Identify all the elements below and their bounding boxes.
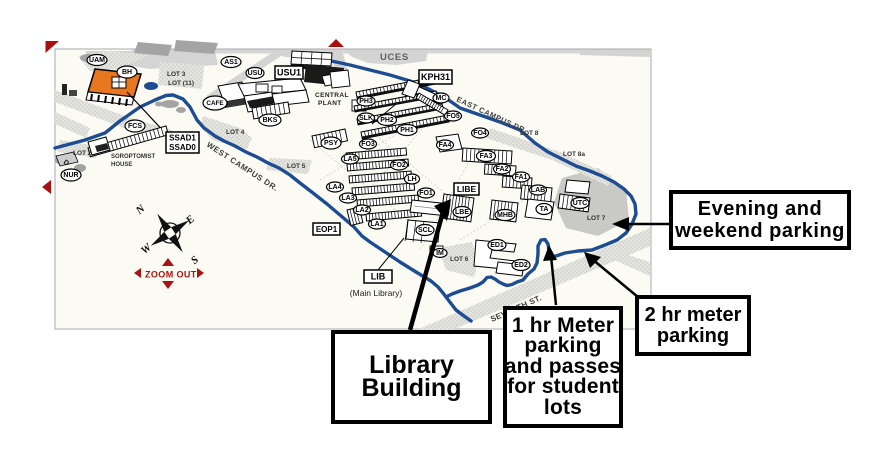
svg-text:FA2: FA2 <box>496 166 509 173</box>
svg-text:EOP1: EOP1 <box>316 225 338 234</box>
svg-text:LH: LH <box>407 176 416 183</box>
svg-text:LA1: LA1 <box>370 221 383 228</box>
svg-text:FCS: FCS <box>128 123 142 130</box>
svg-text:TA: TA <box>540 206 549 213</box>
svg-text:USU: USU <box>248 70 263 77</box>
svg-text:LOT 4: LOT 4 <box>226 129 245 136</box>
svg-text:PSY: PSY <box>324 140 338 147</box>
svg-text:ZOOM OUT: ZOOM OUT <box>145 270 197 280</box>
svg-text:LIBE: LIBE <box>457 184 477 194</box>
svg-text:UAM: UAM <box>89 57 105 64</box>
svg-text:SSAD1: SSAD1 <box>169 134 196 143</box>
svg-text:LA2: LA2 <box>355 207 368 214</box>
svg-text:FO5: FO5 <box>446 113 460 120</box>
svg-text:UCES: UCES <box>380 52 409 63</box>
svg-text:KPH31: KPH31 <box>421 72 450 82</box>
svg-text:BH: BH <box>122 69 132 76</box>
svg-text:LOT 5: LOT 5 <box>287 163 306 170</box>
svg-text:LA3: LA3 <box>341 195 354 202</box>
svg-text:LOT 8a: LOT 8a <box>563 151 585 158</box>
svg-text:LOT 6: LOT 6 <box>450 256 469 263</box>
svg-text:FA1: FA1 <box>515 174 528 181</box>
svg-text:LOT 3: LOT 3 <box>167 71 186 78</box>
svg-text:LIB: LIB <box>371 272 386 282</box>
svg-text:LA4: LA4 <box>328 184 341 191</box>
svg-text:IM: IM <box>436 250 444 257</box>
svg-text:AS1: AS1 <box>224 59 238 66</box>
svg-text:SLK: SLK <box>359 115 373 122</box>
svg-text:UTC: UTC <box>573 200 587 207</box>
svg-text:MHB: MHB <box>497 212 513 219</box>
svg-text:FA3: FA3 <box>480 153 493 160</box>
svg-text:LOT 2: LOT 2 <box>73 150 92 157</box>
svg-text:LOT 7: LOT 7 <box>587 215 606 222</box>
svg-text:(Main Library): (Main Library) <box>350 288 403 298</box>
svg-text:USU1: USU1 <box>277 68 301 78</box>
svg-text:LBE: LBE <box>455 209 469 216</box>
svg-text:CAFE: CAFE <box>206 100 223 107</box>
svg-text:NUR: NUR <box>63 172 78 179</box>
svg-text:PH2: PH2 <box>380 117 394 124</box>
svg-text:ED1: ED1 <box>490 242 504 249</box>
svg-text:FO4: FO4 <box>473 130 487 137</box>
svg-text:LA5: LA5 <box>343 156 356 163</box>
svg-text:ED2: ED2 <box>514 262 528 269</box>
svg-text:LOT 8: LOT 8 <box>520 130 539 137</box>
svg-text:LOT (11): LOT (11) <box>168 80 194 87</box>
svg-text:FO2: FO2 <box>392 162 406 169</box>
svg-text:PH1: PH1 <box>400 127 414 134</box>
svg-text:PH3: PH3 <box>359 98 373 105</box>
svg-text:HOUSE: HOUSE <box>111 162 132 168</box>
svg-text:CENTRAL: CENTRAL <box>315 92 349 99</box>
svg-text:SSAD0: SSAD0 <box>169 143 196 152</box>
svg-text:FO3: FO3 <box>361 141 375 148</box>
svg-text:MC: MC <box>436 95 447 102</box>
svg-text:LAB: LAB <box>531 187 545 194</box>
svg-text:BKS: BKS <box>263 117 278 124</box>
svg-text:SCL: SCL <box>418 227 433 234</box>
svg-text:FO1: FO1 <box>419 190 433 197</box>
svg-text:FA4: FA4 <box>439 142 452 149</box>
svg-text:PLANT: PLANT <box>318 100 342 107</box>
svg-text:SOROPTOMIST: SOROPTOMIST <box>111 154 156 160</box>
